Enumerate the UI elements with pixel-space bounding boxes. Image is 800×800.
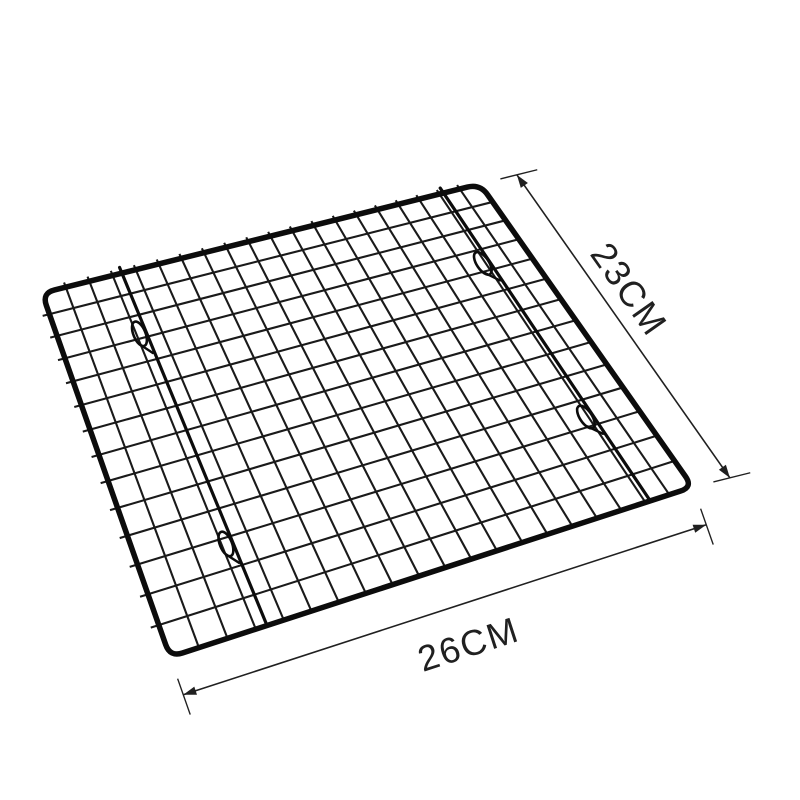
grid-wire-row — [140, 436, 657, 597]
grid-wire-column — [88, 277, 228, 639]
grid-wire-row — [50, 220, 505, 337]
grid-wire-row — [43, 202, 493, 316]
grid-wire-column — [457, 185, 669, 495]
dimension-line — [517, 175, 730, 478]
grid-wire-row — [92, 320, 576, 457]
grid-wire-row — [58, 239, 519, 360]
grid-wire-column — [64, 282, 199, 647]
grid-wire-column — [396, 200, 597, 518]
grid-wire-column — [311, 221, 497, 551]
front-dimension: 26CM — [178, 509, 714, 715]
grid-wire-column — [354, 211, 548, 535]
grid-wire-row — [83, 299, 561, 431]
side-dimension: 23CM — [500, 170, 750, 482]
dimension-extension-tick — [178, 679, 191, 715]
arrowhead-icon — [183, 687, 197, 695]
grid-wire-column — [333, 216, 523, 543]
grid-wire-row — [151, 461, 675, 628]
arrowhead-icon — [719, 465, 730, 478]
arrowhead-icon — [693, 525, 707, 533]
cooling-rack-illustration: 23CM 26CM — [0, 0, 800, 800]
product-photo: 23CM 26CM — [0, 0, 800, 800]
front-dimension-label: 26CM — [413, 609, 525, 680]
arrowhead-icon — [517, 175, 528, 188]
grid-wire-row — [74, 279, 546, 407]
dimension-extension-tick — [713, 473, 750, 482]
